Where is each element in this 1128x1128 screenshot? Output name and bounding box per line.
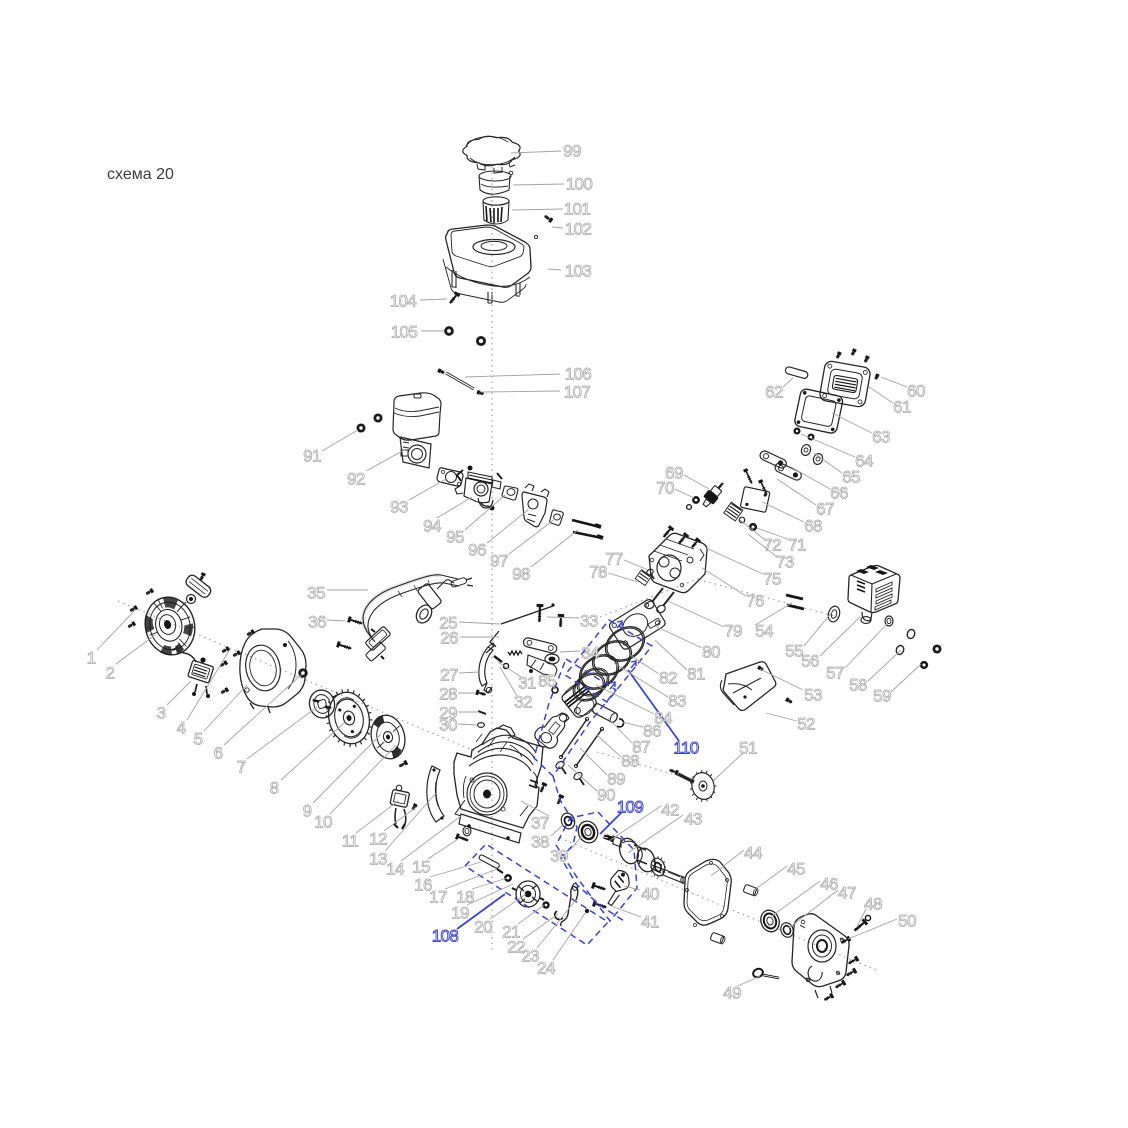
- svg-text:45: 45: [787, 860, 805, 879]
- svg-text:90: 90: [597, 786, 615, 805]
- svg-text:107: 107: [564, 383, 591, 402]
- svg-text:76: 76: [746, 592, 764, 611]
- svg-text:11: 11: [342, 832, 359, 851]
- svg-text:85: 85: [538, 672, 556, 691]
- svg-text:10: 10: [314, 813, 332, 832]
- svg-text:82: 82: [659, 669, 677, 688]
- svg-text:79: 79: [724, 622, 742, 641]
- svg-text:99: 99: [563, 142, 581, 161]
- svg-text:19: 19: [451, 904, 469, 923]
- svg-text:14: 14: [386, 860, 404, 879]
- svg-text:78: 78: [589, 563, 607, 582]
- svg-text:28: 28: [439, 685, 457, 704]
- svg-text:26: 26: [440, 629, 458, 648]
- svg-text:40: 40: [641, 885, 659, 904]
- svg-text:102: 102: [565, 220, 592, 239]
- svg-text:61: 61: [893, 398, 911, 417]
- svg-text:15: 15: [412, 858, 430, 877]
- svg-text:109: 109: [617, 798, 644, 817]
- svg-text:97: 97: [490, 552, 508, 571]
- svg-text:13: 13: [369, 850, 387, 869]
- svg-text:70: 70: [656, 479, 674, 498]
- svg-text:88: 88: [621, 752, 639, 771]
- svg-text:17: 17: [429, 888, 447, 907]
- svg-text:100: 100: [566, 175, 593, 194]
- svg-text:52: 52: [797, 715, 815, 734]
- svg-text:106: 106: [565, 365, 592, 384]
- svg-text:77: 77: [605, 550, 623, 569]
- svg-text:схема 20: схема 20: [107, 166, 174, 183]
- svg-text:56: 56: [801, 652, 819, 671]
- svg-text:6: 6: [214, 744, 223, 763]
- svg-text:101: 101: [564, 200, 591, 219]
- svg-text:8: 8: [270, 779, 279, 798]
- svg-text:59: 59: [873, 687, 891, 706]
- svg-text:63: 63: [872, 428, 890, 447]
- svg-text:30: 30: [439, 716, 457, 735]
- svg-text:44: 44: [744, 844, 762, 863]
- svg-text:58: 58: [849, 676, 867, 695]
- svg-text:54: 54: [755, 622, 773, 641]
- svg-text:103: 103: [565, 262, 592, 281]
- svg-text:2: 2: [106, 664, 115, 683]
- svg-text:35: 35: [307, 584, 325, 603]
- svg-text:53: 53: [804, 686, 822, 705]
- svg-text:20: 20: [474, 918, 492, 937]
- svg-text:34: 34: [581, 644, 599, 663]
- svg-text:105: 105: [391, 323, 418, 342]
- svg-text:51: 51: [739, 739, 757, 758]
- svg-text:110: 110: [673, 739, 698, 758]
- svg-text:42: 42: [661, 801, 679, 820]
- svg-text:5: 5: [194, 730, 203, 749]
- svg-text:41: 41: [641, 913, 659, 932]
- svg-text:33: 33: [580, 612, 598, 631]
- svg-text:47: 47: [838, 884, 856, 903]
- svg-text:3: 3: [157, 704, 166, 723]
- svg-text:93: 93: [390, 498, 408, 517]
- svg-text:62: 62: [765, 383, 783, 402]
- svg-text:24: 24: [537, 959, 555, 978]
- svg-text:75: 75: [763, 570, 781, 589]
- svg-text:95: 95: [446, 528, 464, 547]
- svg-text:1: 1: [87, 649, 96, 668]
- svg-text:38: 38: [531, 833, 549, 852]
- svg-text:37: 37: [531, 814, 549, 833]
- svg-text:48: 48: [864, 895, 882, 914]
- svg-text:57: 57: [826, 664, 844, 683]
- svg-text:7: 7: [237, 758, 246, 777]
- svg-text:9: 9: [303, 802, 312, 821]
- svg-text:43: 43: [684, 810, 702, 829]
- svg-text:81: 81: [687, 665, 705, 684]
- svg-text:12: 12: [369, 830, 387, 849]
- svg-text:32: 32: [514, 693, 532, 712]
- svg-text:36: 36: [308, 613, 326, 632]
- svg-text:94: 94: [423, 517, 441, 536]
- svg-text:27: 27: [440, 666, 458, 685]
- svg-text:96: 96: [468, 541, 486, 560]
- svg-text:91: 91: [303, 447, 321, 466]
- svg-text:68: 68: [804, 517, 822, 536]
- svg-text:98: 98: [512, 565, 530, 584]
- svg-text:46: 46: [820, 875, 838, 894]
- svg-text:104: 104: [390, 292, 417, 311]
- svg-text:39: 39: [550, 847, 568, 866]
- svg-text:31: 31: [518, 674, 536, 693]
- svg-text:49: 49: [723, 984, 741, 1003]
- svg-text:50: 50: [898, 912, 916, 931]
- svg-text:92: 92: [347, 470, 365, 489]
- svg-text:4: 4: [177, 719, 186, 738]
- svg-text:80: 80: [702, 643, 720, 662]
- svg-text:108: 108: [432, 927, 459, 946]
